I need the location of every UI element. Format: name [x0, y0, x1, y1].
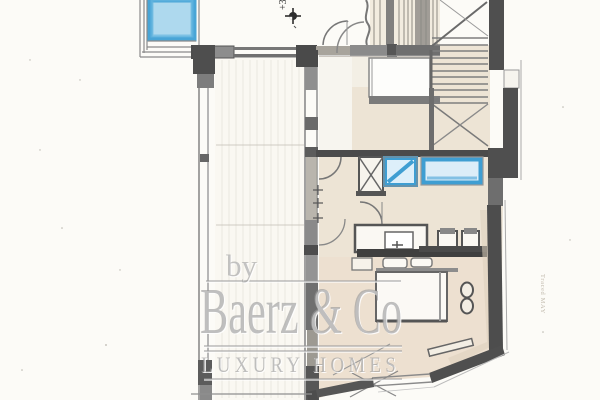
svg-text:Baerz & Co: Baerz & Co [200, 275, 402, 348]
svg-text:Traced MAY: Traced MAY [539, 274, 546, 314]
svg-text:+3: +3 [278, 0, 289, 10]
svg-text:LUXURY HOMES: LUXURY HOMES [201, 352, 400, 377]
